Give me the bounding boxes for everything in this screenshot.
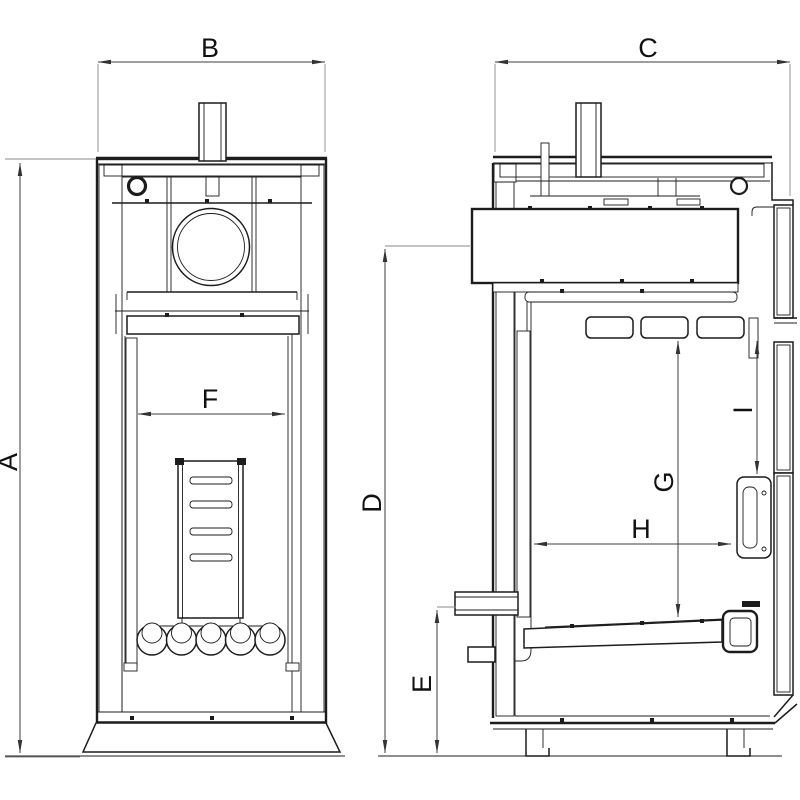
side-sensor-port (731, 178, 747, 194)
side-thermowell-pipe (541, 143, 549, 196)
side-flue-pipe (576, 103, 601, 177)
side-legs (526, 729, 750, 756)
dimension-G: G (649, 341, 679, 617)
boiler-technical-drawing-page: B A F C D E G H I (0, 0, 800, 800)
front-pedestal-skirt (83, 723, 340, 752)
side-top-insulation (500, 164, 764, 177)
dimension-H: H (534, 514, 731, 544)
front-door-lintel (127, 316, 299, 334)
side-top-cover-panel (472, 209, 738, 283)
dim-label-i: I (728, 406, 758, 414)
dimension-I: I (728, 341, 758, 474)
side-liner (517, 331, 530, 617)
front-section-view (5, 103, 345, 756)
dim-label-c: C (638, 33, 658, 63)
dim-label-d: D (357, 493, 387, 513)
dimension-A: A (0, 159, 96, 757)
side-supply-pipe (455, 592, 518, 615)
front-burner-baffle (178, 461, 243, 618)
dimension-E: E (407, 607, 456, 753)
side-section-view (378, 103, 797, 756)
dimension-C: C (495, 33, 790, 196)
side-secondary-air-slots (586, 317, 744, 338)
dim-label-b: B (201, 33, 219, 63)
front-air-nozzles (137, 623, 285, 655)
front-flue-pipe (199, 103, 226, 161)
dim-label-f: F (202, 384, 219, 414)
dim-label-e: E (407, 675, 437, 693)
side-return-stub (468, 647, 495, 662)
dim-label-a: A (0, 453, 23, 471)
dim-label-g: G (649, 471, 679, 492)
boiler-cross-section-diagram: B A F C D E G H I (0, 0, 800, 800)
front-sensor-port (129, 178, 146, 195)
side-grate (524, 620, 722, 648)
dim-label-h: H (631, 514, 651, 544)
